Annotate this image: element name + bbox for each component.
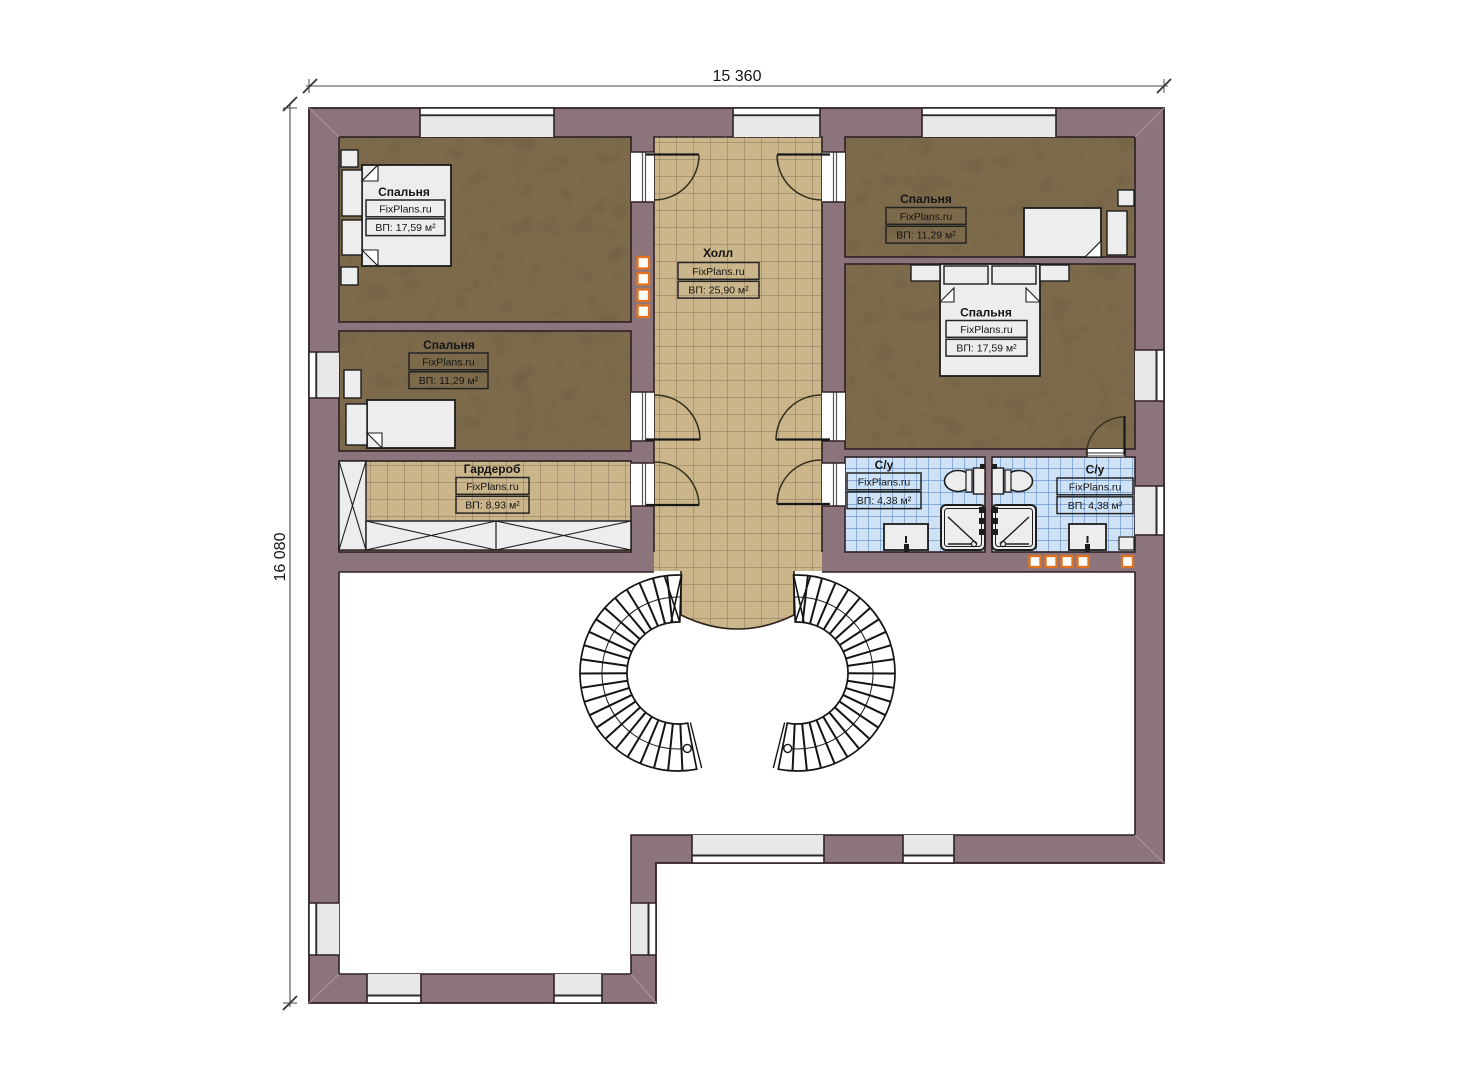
svg-text:ВП: 25,90 м²: ВП: 25,90 м²	[688, 285, 749, 297]
svg-text:ВП: 11,29 м²: ВП: 11,29 м²	[419, 375, 479, 387]
svg-text:ВП: 4,38 м²: ВП: 4,38 м²	[1068, 500, 1123, 512]
svg-text:ВП: 17,59 м²: ВП: 17,59 м²	[956, 343, 1017, 355]
svg-text:Спальня: Спальня	[960, 306, 1012, 320]
svg-text:С/у: С/у	[875, 458, 894, 472]
svg-text:ВП: 11,29 м²: ВП: 11,29 м²	[896, 230, 956, 242]
svg-text:ВП: 17,59 м²: ВП: 17,59 м²	[375, 222, 436, 234]
svg-text:FixPlans.ru: FixPlans.ru	[858, 476, 911, 488]
svg-text:Гардероб: Гардероб	[464, 462, 521, 476]
svg-text:ВП: 4,38 м²: ВП: 4,38 м²	[857, 495, 912, 507]
svg-text:Холл: Холл	[703, 246, 733, 260]
svg-text:FixPlans.ru: FixPlans.ru	[466, 481, 519, 493]
svg-text:С/у: С/у	[1086, 463, 1105, 477]
svg-text:FixPlans.ru: FixPlans.ru	[422, 356, 475, 368]
svg-text:16 080: 16 080	[272, 532, 289, 581]
svg-text:ВП: 8,93 м²: ВП: 8,93 м²	[465, 500, 520, 512]
svg-text:FixPlans.ru: FixPlans.ru	[960, 324, 1013, 336]
svg-text:15 360: 15 360	[713, 68, 762, 85]
svg-text:FixPlans.ru: FixPlans.ru	[1069, 481, 1122, 493]
svg-text:FixPlans.ru: FixPlans.ru	[379, 203, 432, 215]
svg-text:Спальня: Спальня	[423, 338, 475, 352]
svg-text:FixPlans.ru: FixPlans.ru	[900, 211, 953, 223]
svg-text:FixPlans.ru: FixPlans.ru	[692, 266, 745, 278]
svg-text:Спальня: Спальня	[378, 185, 430, 199]
svg-text:Спальня: Спальня	[900, 192, 952, 206]
